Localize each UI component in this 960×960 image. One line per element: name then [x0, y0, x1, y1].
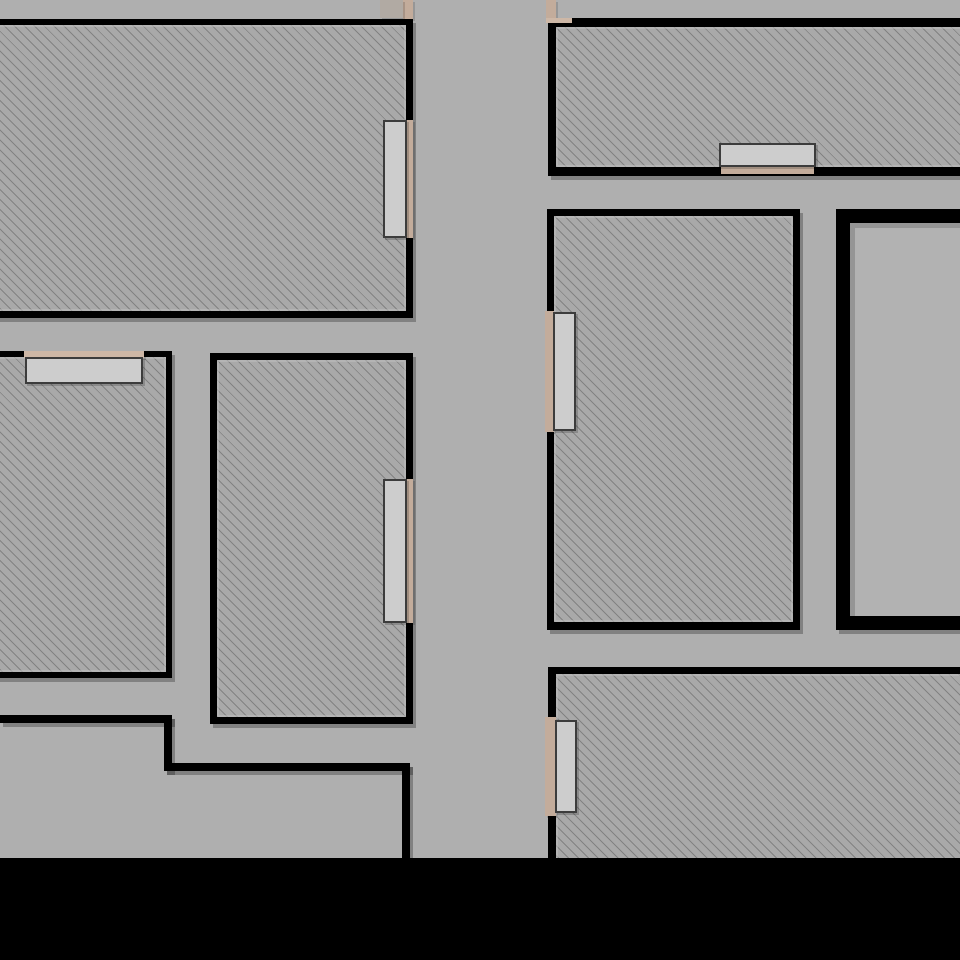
room-mid-right-floor[interactable]	[554, 216, 793, 622]
door-bottom-right-room-west[interactable]	[555, 720, 577, 813]
wall-step-east-vertical	[402, 763, 410, 860]
door-mid-center-room-east[interactable]	[383, 479, 407, 623]
wall-step-west-top	[0, 715, 172, 723]
door-mid-center-room-east-frame	[406, 479, 413, 623]
room-bottom-right	[548, 667, 960, 866]
room-far-right-floor[interactable]	[850, 223, 960, 616]
door-frame-corridor-north-east	[546, 0, 556, 19]
room-top-left-floor[interactable]	[0, 25, 406, 311]
door-top-left-room-east[interactable]	[383, 120, 407, 238]
room-top-left	[0, 19, 413, 318]
floor-plan-canvas	[0, 0, 960, 960]
room-bottom-right-floor[interactable]	[556, 674, 960, 866]
room-mid-center-floor[interactable]	[217, 360, 406, 717]
window-top-right-room-south[interactable]	[719, 143, 816, 167]
door-mid-right-room-west[interactable]	[553, 312, 576, 431]
door-top-left-room-east-frame	[406, 120, 413, 238]
window-mid-left-room-north[interactable]	[25, 357, 143, 384]
room-far-right	[836, 209, 960, 630]
room-mid-left	[0, 351, 172, 678]
void-bottom-band	[0, 858, 960, 960]
sill-corridor-north-west	[380, 0, 403, 18]
room-mid-left-floor[interactable]	[0, 357, 166, 672]
door-frame-corridor-north-west	[403, 0, 413, 19]
room-mid-right	[547, 209, 800, 630]
sill-top-right-corner	[546, 18, 572, 23]
window-top-right-room-south-frame	[721, 167, 814, 174]
wall-step-south	[164, 763, 410, 771]
